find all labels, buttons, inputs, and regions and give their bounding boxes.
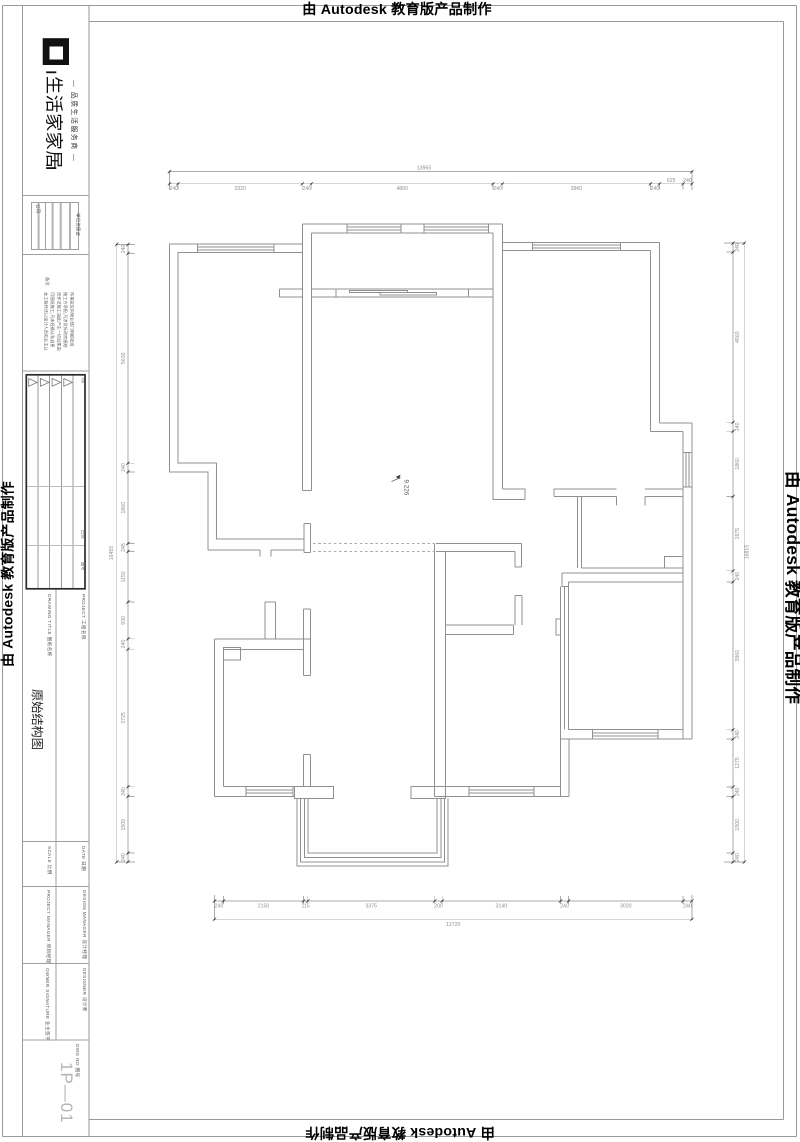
svg-text:1150: 1150 (121, 571, 127, 582)
svg-text:SCALE 比例: SCALE 比例 (46, 846, 53, 875)
svg-text:改作法施工由此产生一切后果由: 改作法施工由此产生一切后果由 (56, 292, 63, 351)
svg-text:备注:: 备注: (44, 277, 51, 287)
svg-text:本工程作法以设计人员和业主认: 本工程作法以设计人员和业主认 (43, 292, 50, 351)
svg-text:由 Autodesk 教育版产品制作: 由 Autodesk 教育版产品制作 (783, 471, 800, 704)
svg-text:625: 625 (667, 178, 676, 184)
svg-text:生活家家居: 生活家家居 (44, 76, 64, 169)
svg-text:240: 240 (735, 730, 741, 739)
svg-text:9.226: 9.226 (403, 480, 410, 496)
svg-text:3960: 3960 (571, 186, 583, 192)
svg-text:3140: 3140 (496, 904, 508, 910)
svg-text:OWNER SIGNATURE 业主签字: OWNER SIGNATURE 业主签字 (45, 968, 51, 1041)
svg-text:1275: 1275 (735, 757, 741, 769)
svg-text:240: 240 (121, 244, 127, 253)
svg-text:240: 240 (683, 904, 692, 910)
svg-text:240: 240 (121, 640, 127, 649)
svg-text:1975: 1975 (735, 528, 741, 540)
svg-text:240: 240 (560, 904, 569, 910)
svg-text:240: 240 (302, 186, 311, 192)
svg-text:240: 240 (735, 572, 741, 581)
svg-text:13965: 13965 (417, 165, 432, 171)
svg-text:16455: 16455 (109, 546, 115, 561)
svg-text:4860: 4860 (396, 186, 408, 192)
svg-text:比例: 比例 (80, 530, 87, 538)
svg-text:3960: 3960 (735, 650, 741, 662)
svg-text:3320: 3320 (234, 186, 246, 192)
svg-text:3725: 3725 (121, 712, 127, 724)
svg-text:240: 240 (215, 904, 224, 910)
svg-text:PROJECT MANAGER 项目经理: PROJECT MANAGER 项目经理 (45, 890, 52, 964)
svg-text:1500: 1500 (121, 819, 127, 831)
svg-text:245: 245 (121, 543, 127, 552)
svg-text:240: 240 (169, 186, 178, 192)
svg-text:240: 240 (493, 186, 502, 192)
svg-text:240: 240 (651, 186, 660, 192)
svg-text:可图纸施工,凡未经确认私自更: 可图纸施工,凡未经确认私自更 (49, 292, 56, 348)
svg-text:原始结构图: 原始结构图 (30, 689, 45, 750)
svg-text:— 品质生活服务商 —: — 品质生活服务商 — (70, 80, 79, 163)
svg-text:1P—01: 1P—01 (57, 1062, 76, 1124)
svg-text:公司: 公司 (36, 204, 41, 214)
svg-text:240: 240 (735, 853, 741, 862)
svg-text:200: 200 (434, 904, 443, 910)
svg-text:1860: 1860 (121, 502, 127, 514)
svg-text:115: 115 (301, 904, 309, 910)
svg-text:12720: 12720 (446, 922, 461, 928)
svg-text:由 Autodesk 教育版产品制作: 由 Autodesk 教育版产品制作 (305, 1124, 495, 1141)
svg-text:由 Autodesk 教育版产品制作: 由 Autodesk 教育版产品制作 (0, 481, 16, 667)
svg-text:施工方承担,凡涉及拆改房屋结: 施工方承担,凡涉及拆改房屋结 (62, 292, 69, 348)
svg-text:1860: 1860 (735, 458, 741, 470)
svg-text:PROJECT 工程名称: PROJECT 工程名称 (80, 594, 87, 640)
svg-text:2150: 2150 (258, 904, 270, 910)
svg-text:DRAWING TITLE 图纸名称: DRAWING TITLE 图纸名称 (46, 594, 53, 657)
svg-text:240: 240 (735, 787, 741, 796)
svg-text:5630: 5630 (121, 352, 127, 364)
svg-text:930: 930 (121, 616, 127, 625)
svg-text:构事宜应向物业部门申报批准.: 构事宜应向物业部门申报批准. (69, 292, 76, 348)
svg-text:4560: 4560 (735, 331, 741, 343)
svg-text:单位资质证: 单位资质证 (75, 213, 82, 236)
svg-text:240: 240 (121, 463, 127, 472)
svg-text:240: 240 (683, 178, 692, 184)
svg-text:240: 240 (121, 853, 127, 862)
svg-text:3375: 3375 (365, 904, 377, 910)
svg-text:16815: 16815 (745, 545, 751, 560)
svg-text:240: 240 (121, 787, 127, 796)
svg-text:3020: 3020 (620, 904, 632, 910)
svg-text:240: 240 (735, 422, 741, 431)
svg-text:DESIGN MANAGER 设计经理: DESIGN MANAGER 设计经理 (81, 890, 88, 959)
svg-text:No: No (81, 378, 86, 384)
svg-text:240: 240 (735, 243, 741, 252)
svg-text:1500: 1500 (735, 819, 741, 831)
svg-text:由 Autodesk 教育版产品制作: 由 Autodesk 教育版产品制作 (302, 1, 492, 18)
svg-text:DESIGNER 设计师: DESIGNER 设计师 (81, 968, 88, 1012)
